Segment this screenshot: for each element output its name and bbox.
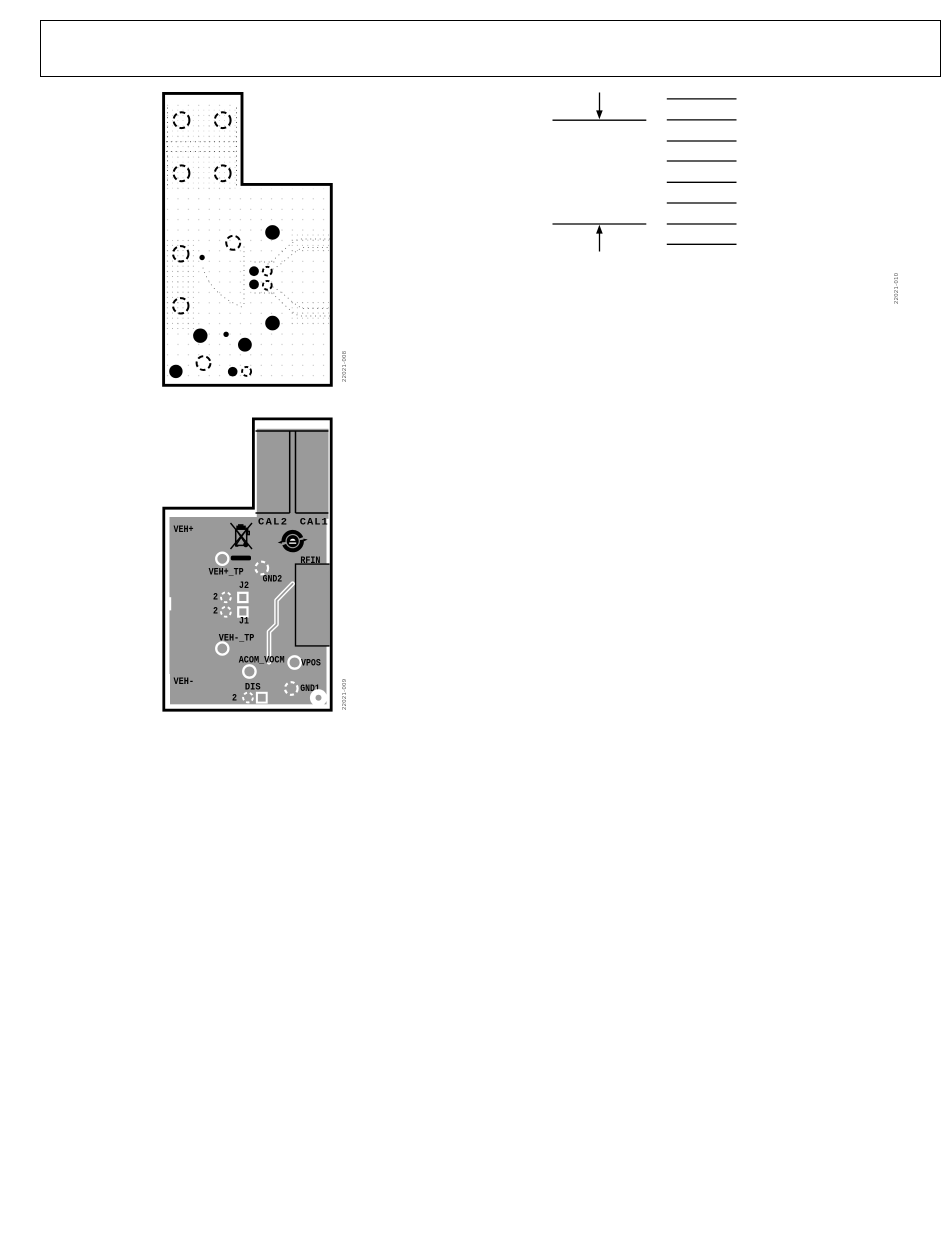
- svg-text:DIS: DIS: [245, 681, 261, 693]
- svg-text:22021-009: 22021-009: [342, 679, 348, 710]
- svg-text:J2: J2: [239, 580, 249, 592]
- svg-text:2: 2: [213, 606, 218, 618]
- svg-text:22021-008: 22021-008: [342, 351, 348, 382]
- svg-text:CAL1: CAL1: [300, 516, 328, 528]
- svg-text:CAL2: CAL2: [258, 516, 287, 528]
- svg-text:ACOM_VOCM: ACOM_VOCM: [239, 655, 285, 667]
- svg-text:J1: J1: [239, 615, 249, 627]
- svg-text:GND2: GND2: [263, 574, 283, 586]
- svg-text:VPOS: VPOS: [301, 658, 321, 670]
- svg-text:22021-010: 22021-010: [894, 273, 900, 304]
- svg-text:VEH+_TP: VEH+_TP: [209, 566, 244, 578]
- svg-text:VEH+: VEH+: [174, 524, 194, 536]
- svg-text:2: 2: [213, 591, 218, 603]
- svg-text:2: 2: [232, 693, 237, 705]
- svg-text:RFIN: RFIN: [300, 555, 320, 567]
- svg-text:VEH-: VEH-: [174, 676, 195, 688]
